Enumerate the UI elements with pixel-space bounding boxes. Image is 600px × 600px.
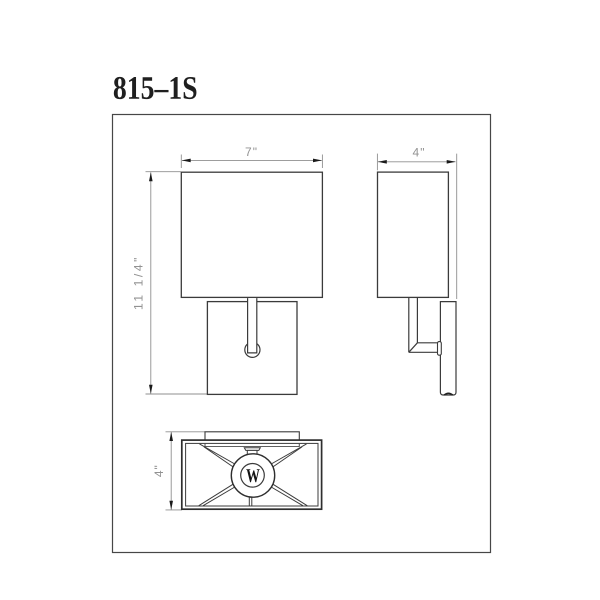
svg-text:7": 7" [245,145,258,159]
svg-text:4": 4" [413,146,426,160]
svg-text:11 1/4": 11 1/4" [132,255,146,310]
svg-text:4": 4" [152,464,166,477]
